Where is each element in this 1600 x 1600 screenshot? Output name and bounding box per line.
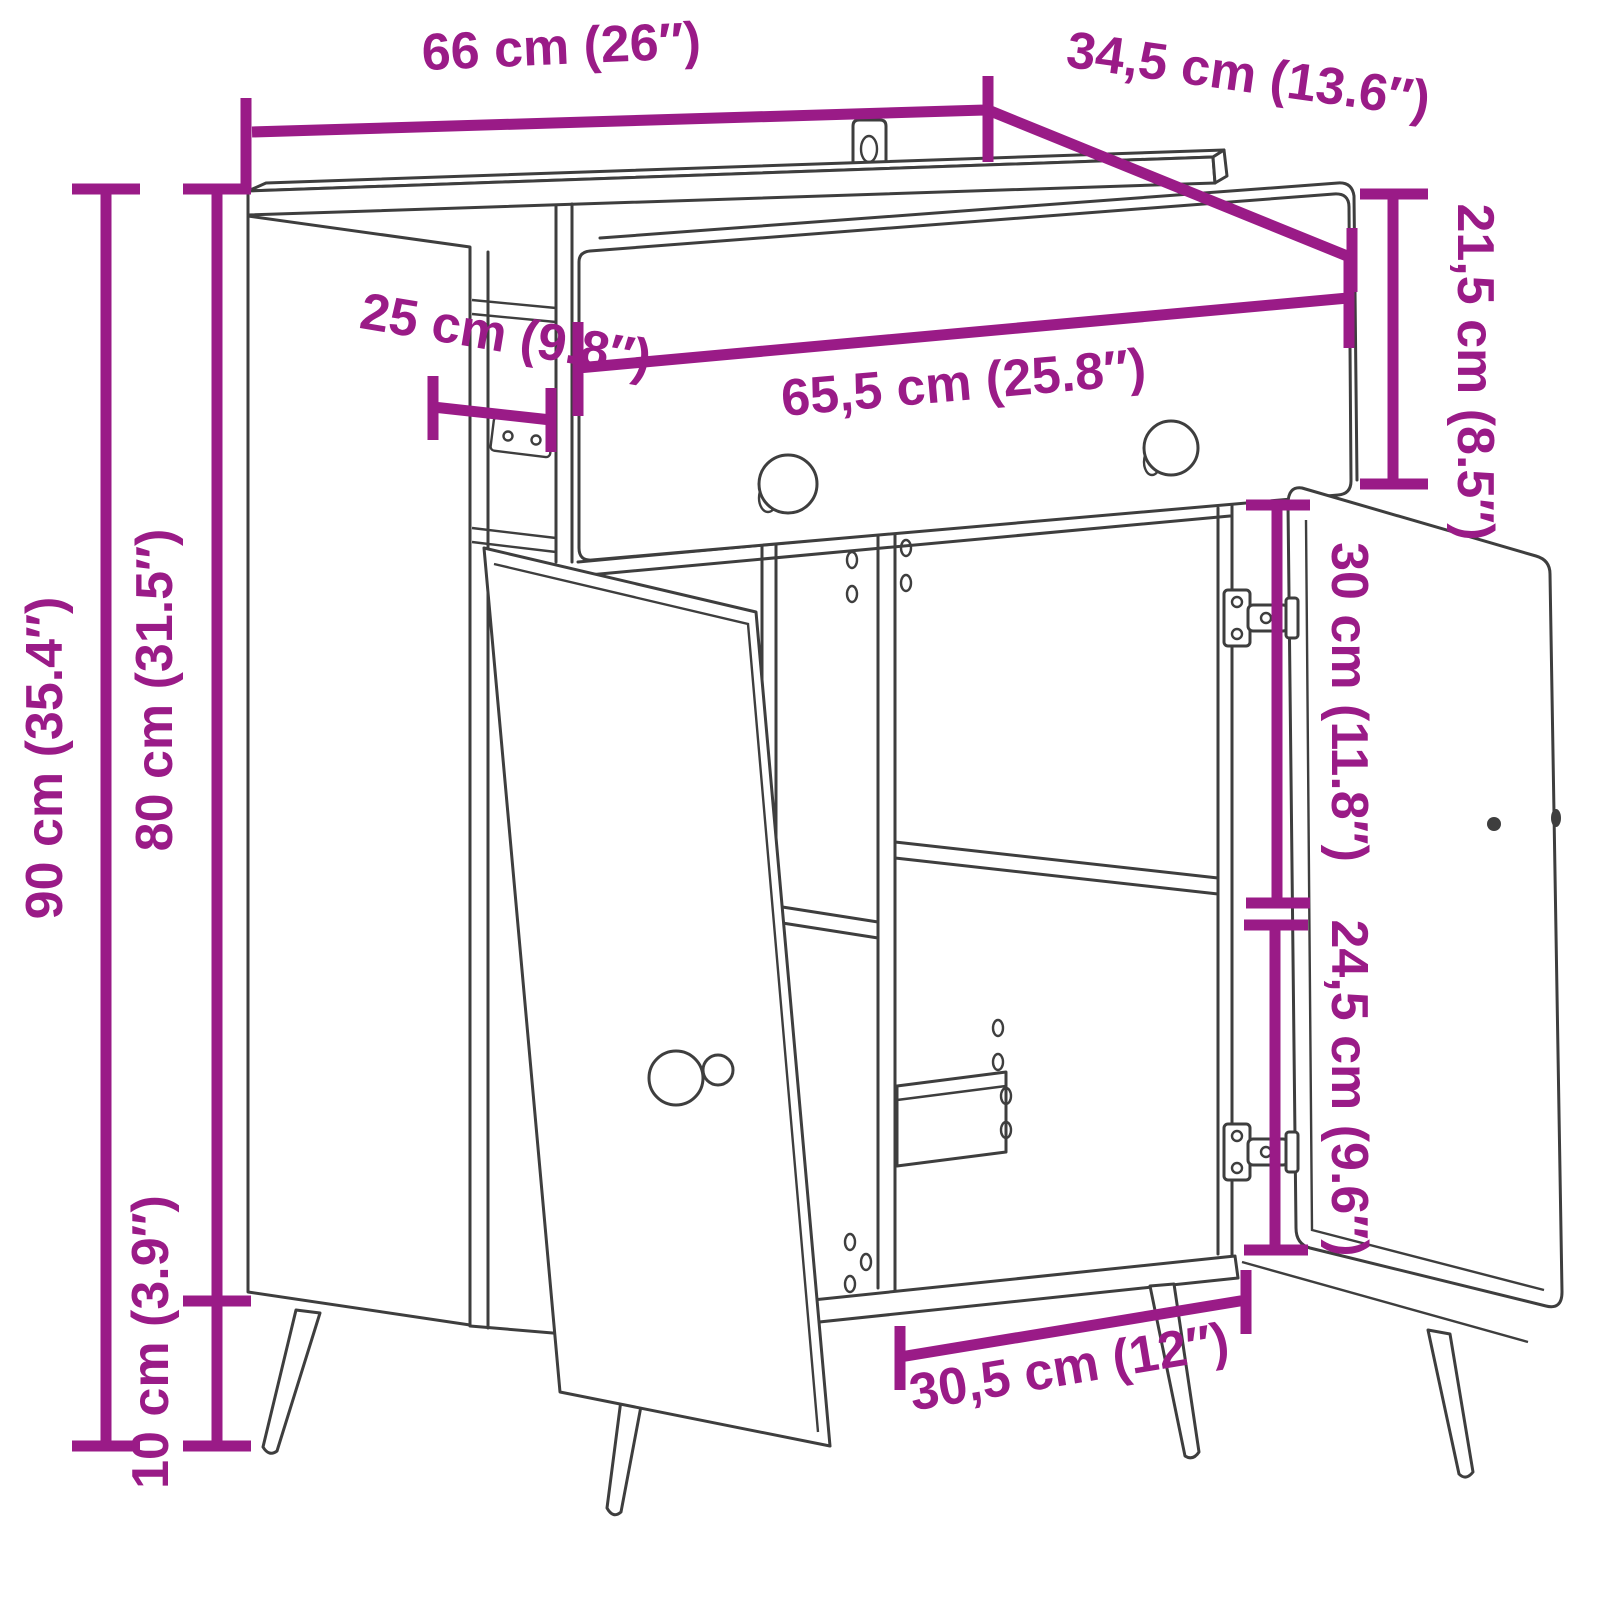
dim-label-top-width: 66 cm (26″)	[420, 12, 702, 82]
diagram-canvas: 66 cm (26″) 34,5 cm (13.6″) 25 cm (9.8″)…	[0, 0, 1600, 1600]
hinge-top-icon	[1224, 590, 1298, 646]
drawer-knob-hole-right	[1144, 421, 1198, 475]
dim-label-leg-height: 10 cm (3.9″)	[122, 1195, 180, 1489]
shelf-left-compartment	[776, 906, 878, 938]
dim-label-drawer-height: 21,5 cm (8.5″)	[1446, 203, 1504, 540]
drawer-knob-hole-left	[759, 455, 817, 513]
left-door	[484, 548, 830, 1446]
right-door-edge-hole	[1551, 809, 1561, 827]
dim-body-height: 80 cm (31.5″)	[126, 189, 251, 1301]
dim-label-total-height: 90 cm (35.4″)	[16, 597, 74, 920]
front-stile	[556, 204, 572, 562]
top-panel	[248, 150, 1227, 215]
shelf-pin-holes	[845, 540, 1011, 1292]
dim-label-top-depth: 34,5 cm (13.6″)	[1063, 21, 1434, 129]
dim-drawer-height: 21,5 cm (8.5″)	[1360, 194, 1504, 541]
interior-step	[897, 1072, 1006, 1166]
dim-lower-compartment-width: 30,5 cm (12″)	[900, 1270, 1246, 1422]
hinge-bottom-icon	[1224, 1124, 1298, 1180]
dim-label-body-height: 80 cm (31.5″)	[126, 529, 184, 852]
leg-front-left	[263, 1310, 320, 1453]
dim-label-upper-compartment-height: 30 cm (11.8″)	[1320, 542, 1378, 862]
dim-label-lower-compartment-height: 24,5 cm (9.6″)	[1320, 919, 1378, 1256]
top-panel-end-cap	[1213, 150, 1227, 183]
shelf-right-compartment	[895, 842, 1218, 894]
dimension-diagram: 66 cm (26″) 34,5 cm (13.6″) 25 cm (9.8″)…	[0, 0, 1600, 1600]
right-door-knob-hole	[1487, 817, 1501, 831]
center-divider	[878, 533, 895, 1290]
leg-back-right	[1428, 1330, 1473, 1477]
dim-leg-height: 10 cm (3.9″)	[122, 1195, 251, 1489]
